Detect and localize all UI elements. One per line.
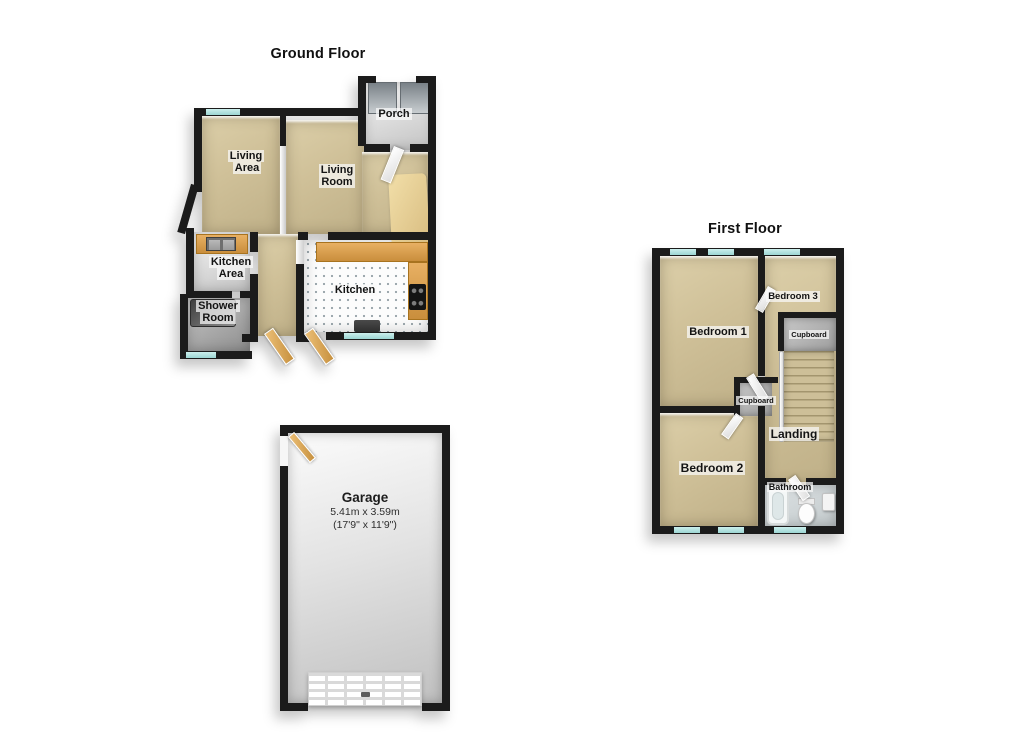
wall-segment [296, 240, 304, 264]
wall-segment [250, 232, 258, 252]
garage-door [308, 672, 422, 706]
window [774, 527, 806, 533]
wall-segment [652, 248, 660, 534]
wall-segment [416, 76, 436, 83]
kitchen-area-sink [206, 237, 236, 251]
ground-floor-title: Ground Floor [238, 46, 398, 62]
wall-segment [280, 703, 308, 711]
wall-segment [836, 248, 844, 534]
wash-basin [822, 493, 835, 511]
kitchen-area-label: Kitchen Area [200, 256, 262, 280]
window [206, 109, 240, 115]
window [764, 249, 800, 255]
wall-segment [240, 291, 250, 298]
wall-segment [364, 144, 390, 152]
porch-label: Porch [371, 108, 417, 120]
kitchen-label: Kitchen [324, 284, 386, 296]
shower-room-label: Shower Room [186, 300, 250, 324]
bedroom1-label: Bedroom 1 [682, 326, 754, 338]
bedroom3-label: Bedroom 3 [760, 292, 826, 302]
first-floor-title: First Floor [660, 221, 830, 237]
hob [409, 284, 426, 310]
garage-label: Garage [315, 490, 415, 505]
living-area-label: Living Area [216, 150, 278, 174]
bedroom2-label: Bedroom 2 [674, 462, 750, 475]
wall-segment [358, 76, 376, 83]
wall-segment [428, 76, 436, 152]
wall-segment [410, 144, 430, 152]
wall-segment [280, 425, 288, 711]
wall-segment [758, 256, 765, 376]
toilet [798, 503, 815, 524]
wall-segment [358, 76, 366, 146]
garage-floor [288, 433, 442, 703]
window [670, 249, 696, 255]
garage-size-imperial: (17'9" x 11'9") [305, 519, 425, 531]
door-opening [280, 436, 288, 466]
wall-segment [660, 406, 734, 413]
wall-segment [296, 264, 304, 336]
garage-door-handle [361, 692, 370, 697]
window [708, 249, 734, 255]
wall-segment [758, 406, 765, 526]
landing-label: Landing [760, 428, 828, 441]
ground-floor-plan: Porch Living Area Living Room Kitchen Ar… [178, 72, 448, 382]
wall-segment [280, 425, 450, 433]
living-area-floor [202, 116, 280, 234]
living-room-label: Living Room [304, 164, 370, 188]
garage-plan: Garage 5.41m x 3.59m (17'9" x 11'9") [275, 420, 455, 720]
wall-segment [328, 232, 428, 240]
cupboard-label: Cupboard [734, 397, 778, 405]
kitchen-counter [316, 242, 428, 262]
wall-segment [298, 232, 308, 240]
wall-segment [186, 228, 194, 298]
wall-segment [422, 703, 450, 711]
wall-segment [428, 148, 436, 340]
wall-segment [186, 291, 232, 298]
wall-segment [250, 274, 258, 336]
window [186, 352, 216, 358]
bathroom-label: Bathroom [760, 483, 820, 493]
wall-segment [280, 146, 286, 234]
wall-segment [194, 108, 202, 192]
wall-segment [442, 425, 450, 711]
garage-size-metric: 5.41m x 3.59m [305, 506, 425, 518]
wall-segment [177, 184, 198, 234]
window [674, 527, 700, 533]
cupboard-label: Cupboard [784, 331, 834, 339]
wall-segment [280, 116, 286, 146]
window [344, 333, 394, 339]
floorplan-page: { "ground_floor": { "title": "Ground Flo… [0, 0, 1024, 745]
kitchen-sink [354, 320, 380, 332]
wall-segment [778, 312, 836, 318]
first-floor-plan: Bedroom 1 Bedroom 3 Cupboard Cupboard La… [648, 246, 848, 541]
window [718, 527, 744, 533]
hallway-floor [258, 234, 298, 336]
